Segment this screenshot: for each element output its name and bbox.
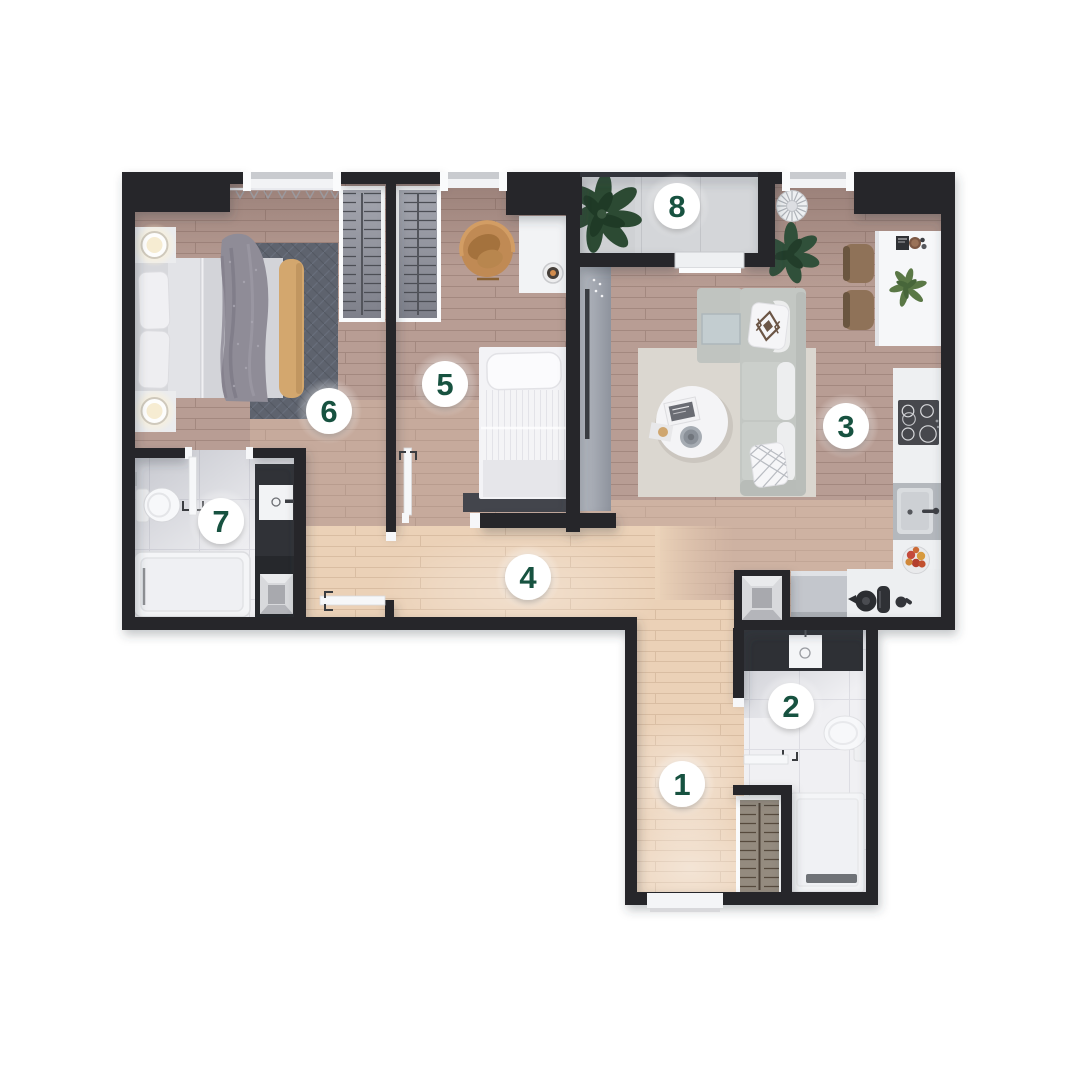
svg-text:4: 4 bbox=[519, 560, 537, 595]
svg-text:8: 8 bbox=[668, 189, 685, 224]
svg-text:2: 2 bbox=[782, 689, 799, 724]
svg-text:1: 1 bbox=[673, 767, 690, 802]
svg-text:3: 3 bbox=[837, 409, 854, 444]
svg-text:5: 5 bbox=[436, 367, 453, 402]
svg-text:6: 6 bbox=[320, 394, 337, 429]
svg-text:7: 7 bbox=[212, 504, 229, 539]
